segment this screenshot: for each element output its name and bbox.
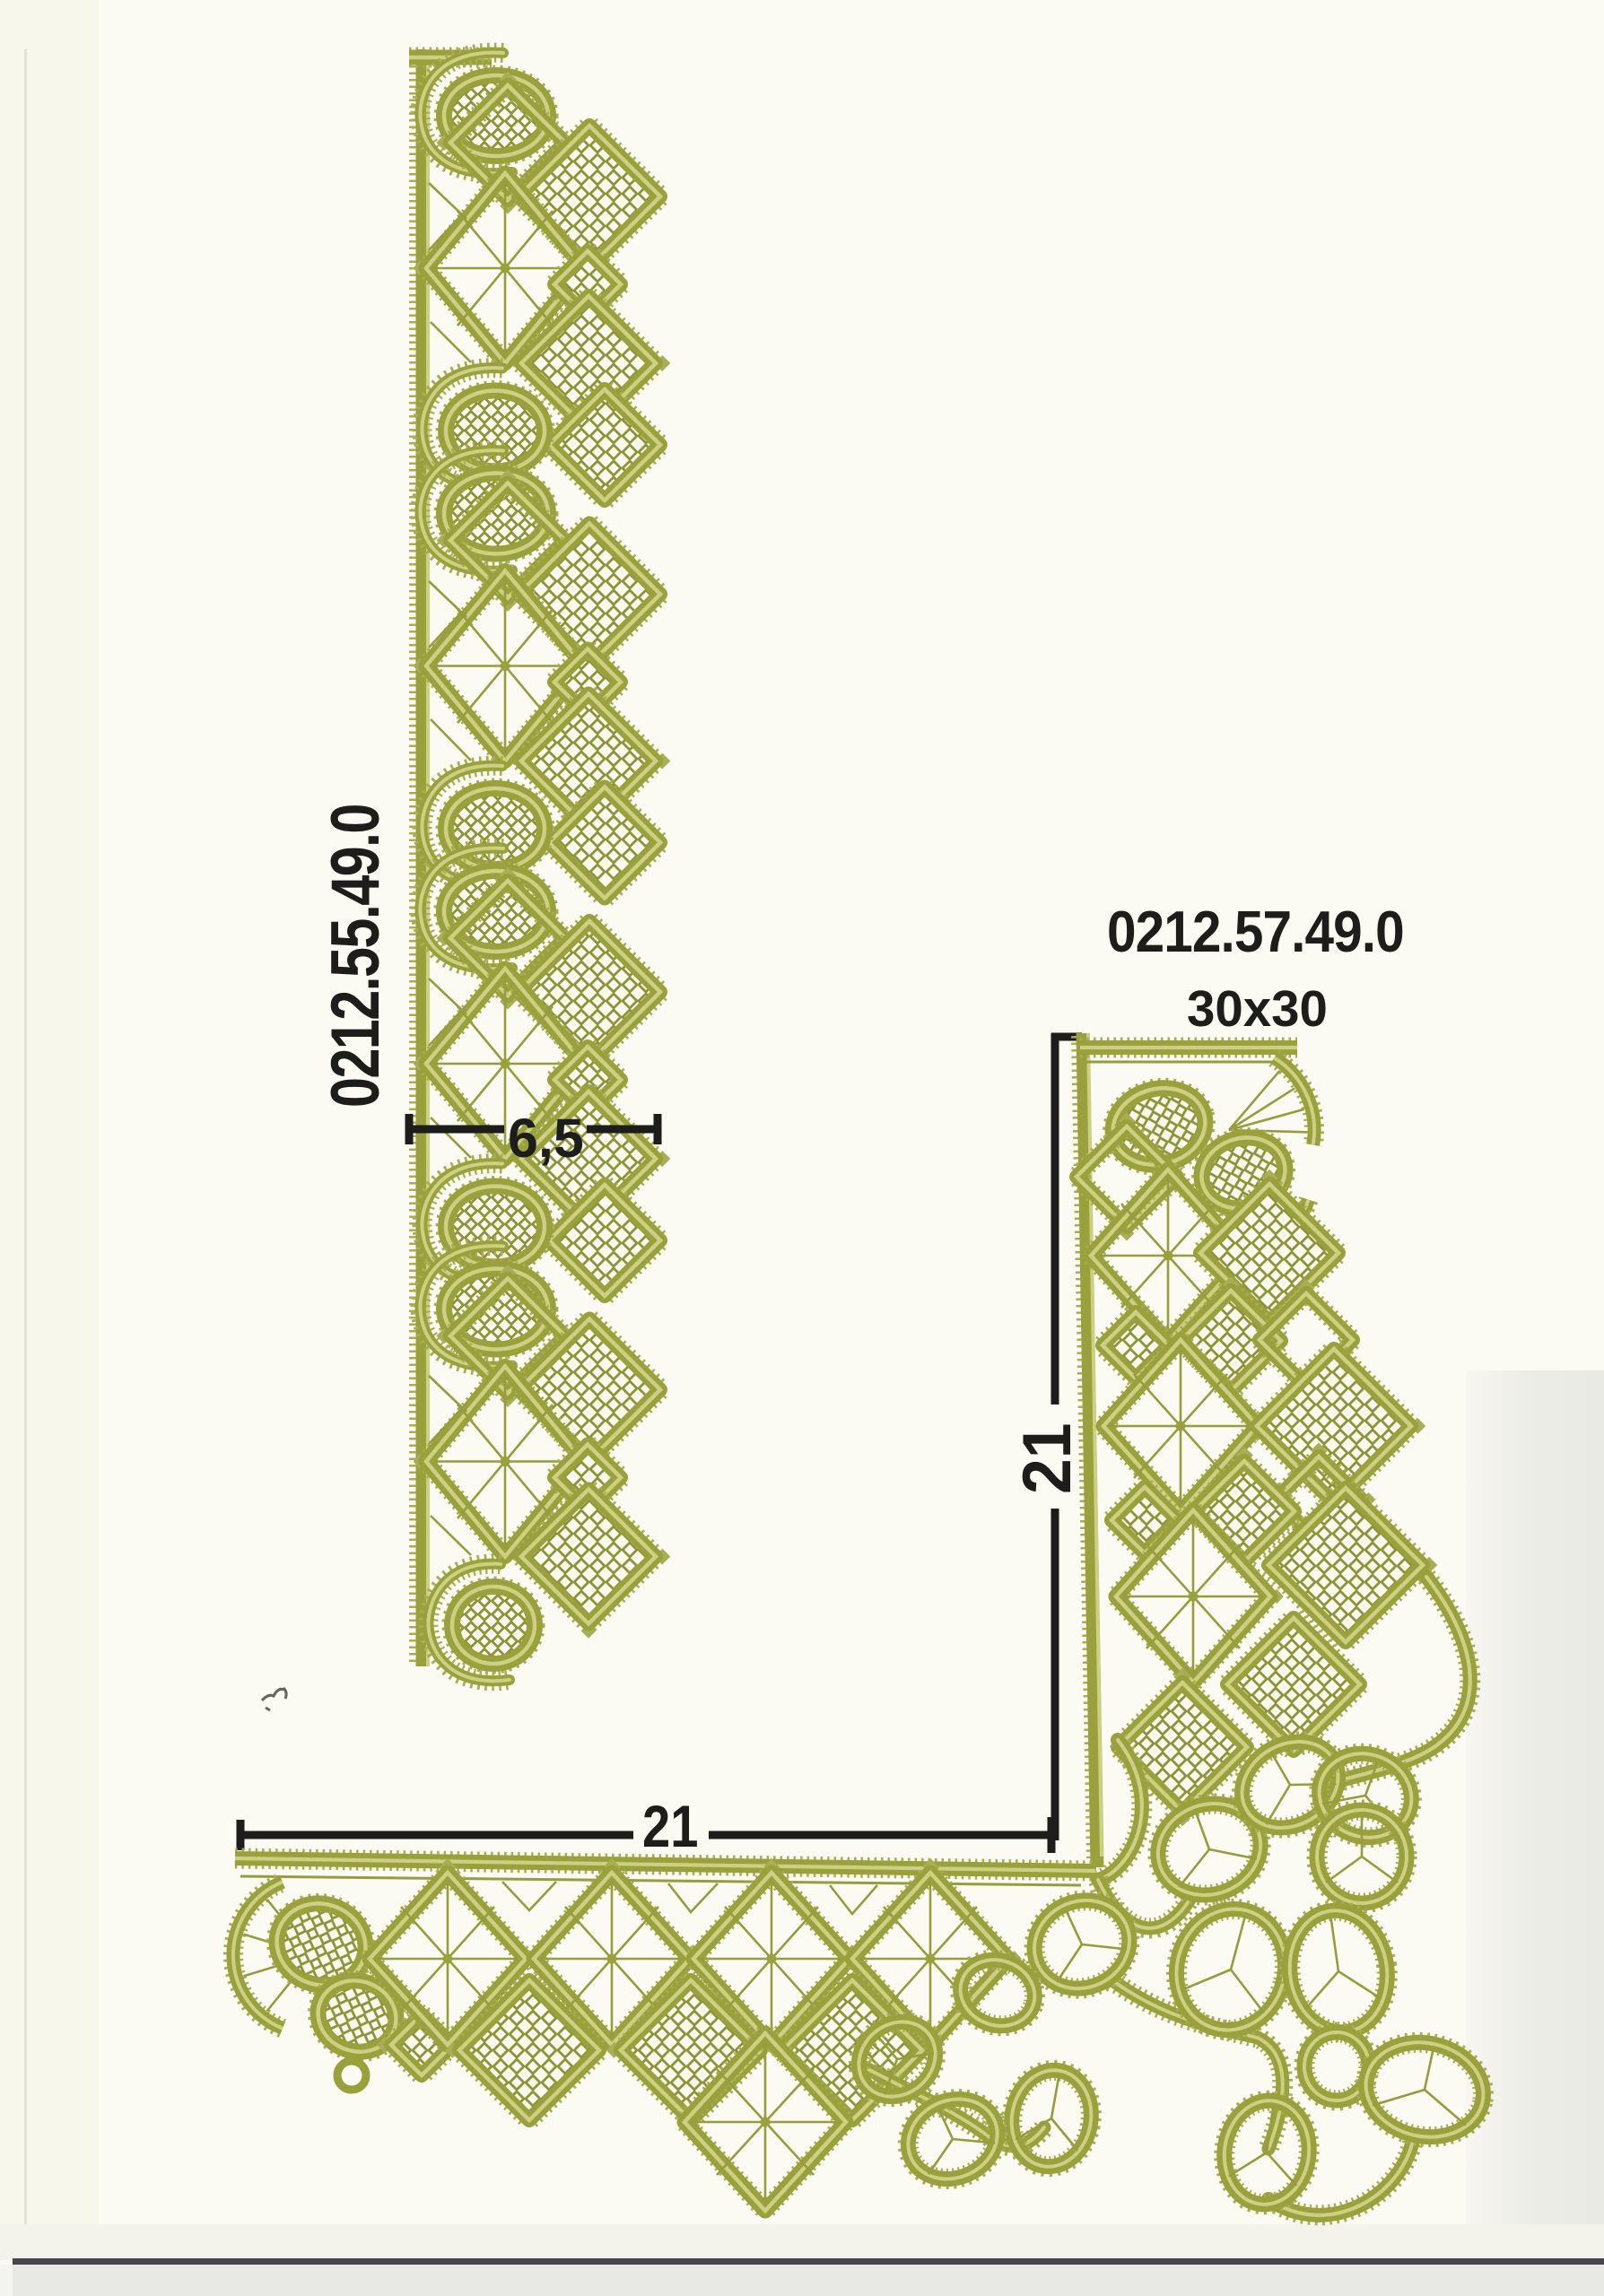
svg-text:21: 21 — [642, 1794, 698, 1859]
svg-text:21: 21 — [1008, 1423, 1085, 1494]
svg-text:0212.55.49.0: 0212.55.49.0 — [318, 804, 394, 1108]
svg-text:6,5: 6,5 — [508, 1108, 584, 1169]
svg-text:0212.57.49.0: 0212.57.49.0 — [1107, 900, 1404, 965]
svg-text:30x30: 30x30 — [1187, 981, 1328, 1038]
